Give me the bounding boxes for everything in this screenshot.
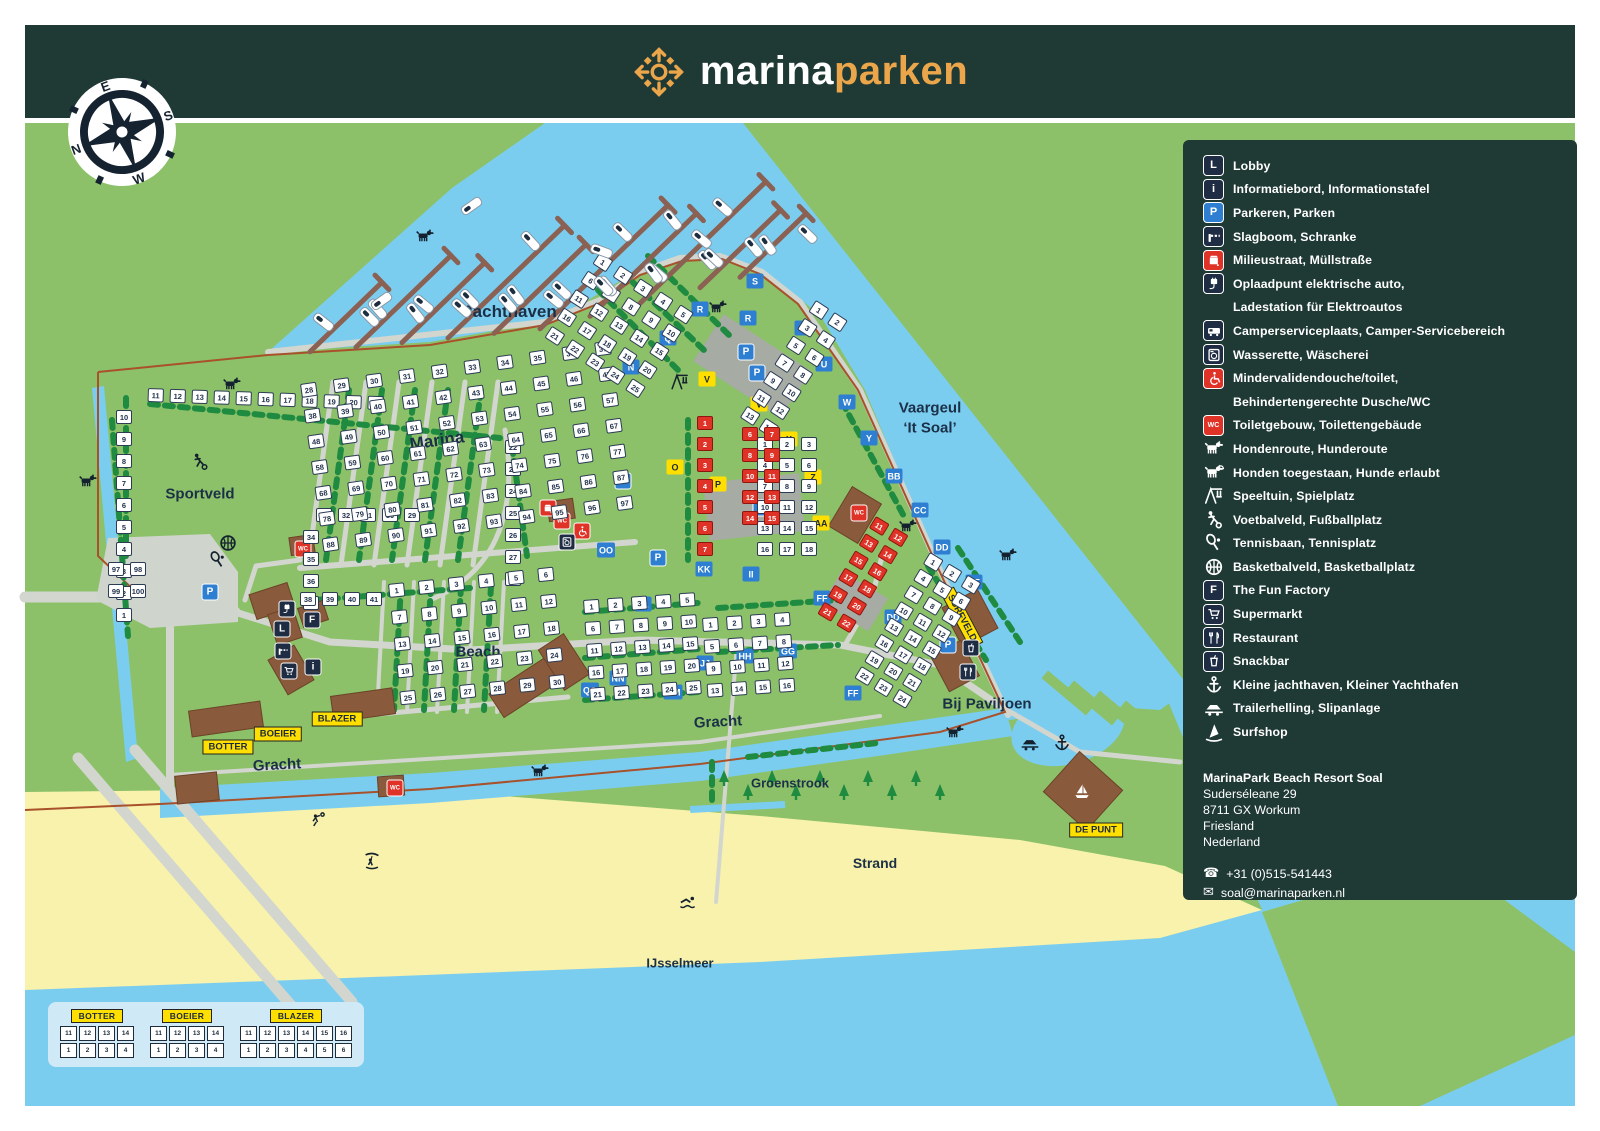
lot-number: 3 [750,614,767,629]
legend-item-label: Mindervalidendouche/toilet, [1233,371,1398,385]
legend-item: Behindertengerechte Dusche/WC [1203,390,1567,414]
lot-number: 43 [467,385,485,401]
map-label: Vaargeul [899,400,962,417]
legend-item: Honden toegestaan, Hunde erlaubt [1203,461,1567,485]
restaurant-icon [1203,627,1224,648]
map-label: Strand [853,855,897,871]
lot-number: 21 [544,326,565,346]
lot-number: 2 [607,597,624,612]
compass-rose: E S W N [62,72,182,192]
lot-number: 15 [754,679,771,694]
lot-number: 12 [801,500,817,514]
lot-number: 11 [148,388,164,403]
lot-number: 8 [775,634,792,649]
lot-number: 35 [303,552,319,566]
playground-icon [671,373,690,392]
map-label: Groenstrook [751,776,829,791]
key-lot-number: 3 [278,1043,295,1058]
legend-item-label: Behindertengerechte Dusche/WC [1233,395,1431,409]
lot-number: 2 [726,615,743,630]
lot-number: 19 [864,650,885,670]
lot-number: 1 [923,552,944,572]
lot-number: 97 [616,495,634,511]
key-lot-number: 12 [169,1026,186,1041]
lot-number: 71 [413,471,431,487]
lot-number: 1 [388,582,405,598]
lot-number: 8 [116,454,132,468]
p-icon: P [202,584,219,601]
lot-number: 4 [697,479,713,493]
legend-item: Mindervalidendouche/toilet, [1203,366,1567,390]
lot-letter-badge: V [699,372,716,387]
key-group-name: BOTTER [71,1009,124,1023]
legend-item: Slagboom, Schranke [1203,225,1567,249]
lot-number: 59 [344,454,362,470]
legend-item-label: Hondenroute, Hunderoute [1233,442,1388,456]
legend-item-label: Toiletgebouw, Toilettengebäude [1233,418,1422,432]
boat [459,195,484,216]
lot-number: 9 [705,661,722,676]
lot-number: 14 [629,328,650,348]
i-icon: i [305,659,322,676]
key-lot-number: 14 [207,1026,224,1041]
key-lot-number: 14 [297,1026,314,1041]
legend-item: Oplaadpunt elektrische auto, [1203,272,1567,296]
lot-number: 6 [742,427,758,441]
lot-number: 14 [779,521,795,535]
lot-number: 50 [373,424,391,440]
key-lot-number: 1 [60,1043,77,1058]
lot-number: 17 [779,542,795,556]
basketball-icon [219,534,238,553]
lot-number: 8 [421,606,438,622]
lot-number: 4 [653,291,674,311]
legend-item-label: Surfshop [1233,725,1288,739]
lot-number: 74 [511,457,529,473]
lot-number: 9 [641,310,662,330]
lot-number: 10 [781,382,802,402]
boat [519,230,542,254]
sailboat-icon [1073,783,1092,802]
key-lot-number: 13 [278,1026,295,1041]
key-lot-number: 2 [259,1043,276,1058]
lot-number: 1 [702,617,719,632]
lot-number: 96 [583,500,601,516]
key-group-name: BLAZER [270,1009,322,1023]
lot-number: 84 [514,483,532,499]
lot-number: 63 [474,436,492,452]
lot-number: 3 [697,458,713,472]
lot-key-panel: BOTTER111213141234BOEIER111213141234BLAZ… [48,1002,364,1067]
lot-number: 6 [727,637,744,652]
lot-number: 15 [801,521,817,535]
legend-items: LLobbyiInformatiebord, Informationstafel… [1203,154,1567,744]
lot-number: 54 [503,406,521,422]
lot-number: 10 [742,469,758,483]
dog-icon [1203,438,1225,460]
lot-letter-badge: R [692,302,709,317]
lot-number: 83 [481,488,499,504]
lot-number: 23 [873,677,894,697]
lot-number: 34 [496,354,514,370]
dog-icon [709,299,728,318]
lot-number: 2 [418,579,435,595]
lot-number: 8 [793,365,814,385]
lot-number: 11 [779,500,795,514]
cart-icon [1203,604,1224,625]
map-label: Bij Paviljoen [942,696,1031,713]
trailer-icon [1203,697,1225,719]
key-lot-number: 2 [79,1043,96,1058]
lot-number: 22 [836,613,857,633]
lot-number: 6 [116,498,132,512]
lot-number: 25 [399,690,416,706]
lot-number: 29 [519,677,536,693]
key-lot-number: 16 [335,1026,352,1041]
legend-item: Wasserette, Wäscherei [1203,343,1567,367]
dog-icon [999,547,1018,566]
lot-number: 9 [764,448,780,462]
lot-number: 14 [213,390,229,405]
lot-number: 20 [637,360,658,380]
lot-number: 85 [547,478,565,494]
resort-phone: +31 (0)515-541443 [1226,866,1332,882]
lot-number: 5 [679,592,696,607]
legend-item-label: Oplaadpunt elektrische auto, [1233,277,1405,291]
lot-number: 13 [394,636,411,652]
kitesurfer-icon [363,853,382,872]
lot-letter-badge: OO [597,543,615,558]
map-label: Sportveld [165,486,234,503]
lot-number: 10 [680,614,697,629]
lot-letter-badge: II [743,567,760,582]
lot-number: 39 [336,403,354,419]
lot-number: 11 [912,612,933,632]
lot-number: 72 [445,466,463,482]
wc-icon: WC [851,505,868,522]
email-icon: ✉ [1203,884,1214,901]
lot-number: 9 [450,603,467,619]
boat [710,195,734,218]
lot-number: 4 [655,594,672,609]
lot-number: 14 [731,681,748,696]
lot-number: 3 [448,576,465,592]
legend-item-label: Snackbar [1233,654,1289,668]
map-label: Gracht [252,755,301,775]
lot-number: 16 [257,392,273,407]
lot-number: 15 [682,636,699,651]
footballer-icon [191,453,210,472]
legend-item: Surfshop [1203,720,1567,744]
key-lot-number: 15 [316,1026,333,1041]
snackbar-icon [963,640,980,657]
lot-number: 6 [697,521,713,535]
lot-number: 21 [902,672,923,692]
lot-number: 21 [589,687,606,702]
lot-number: 48 [307,433,325,449]
lot-number: 15 [453,630,470,646]
legend-item: Camperserviceplaats, Camper-Serviceberei… [1203,319,1567,343]
lot-number: 16 [588,665,605,680]
lot-number: 23 [516,650,533,666]
lot-number: 4 [774,612,791,627]
lot-number: 24 [661,682,678,697]
lot-number: 52 [438,415,456,431]
lot-number: 27 [459,683,476,699]
lot-number: 81 [416,497,434,513]
lot-number: 75 [543,453,561,469]
lot-letter-badge: S [747,274,764,289]
legend-item-label: Voetbalveld, Fußballplatz [1233,513,1382,527]
legend-item-label: Wasserette, Wäscherei [1233,348,1369,362]
lot-number: 46 [565,371,583,387]
lot-number: 28 [300,382,318,398]
lot-number: 16 [867,562,888,582]
lot-number: 7 [116,476,132,490]
lot-number: 79 [351,506,369,522]
lot-number: 42 [434,389,452,405]
l-icon: L [1203,155,1224,176]
ev-icon [279,601,296,618]
lot-number: 22 [613,685,630,700]
lot-number: 77 [609,443,627,459]
lot-number: 67 [605,418,623,434]
lot-number: 8 [922,596,943,616]
cart-icon [281,663,298,680]
lot-number: 25 [625,378,646,398]
wc-icon: WC [1203,415,1224,436]
lot-number: 33 [463,359,481,375]
lot-number: 2 [827,312,848,332]
lot-number: 41 [402,394,420,410]
resort-email: soal@marinaparken.nl [1221,885,1345,901]
dog-icon [416,228,435,247]
lot-number: 24 [892,689,913,709]
area-tag: BLAZER [312,712,363,727]
lot-number: 14 [742,511,758,525]
lot-number: 57 [601,392,619,408]
lot-number: 88 [322,536,340,552]
legend-item-label: Basketbalveld, Basketballplatz [1233,560,1415,574]
wheelchair-icon [574,523,591,540]
lot-number: 65 [540,427,558,443]
lot-number: 87 [612,469,630,485]
lot-number: 17 [838,567,859,587]
lot-letter-badge: R [740,311,757,326]
lot-number: 3 [633,278,654,298]
lot-number: 7 [764,427,780,441]
legend-item: Ladestation für Elektroautos [1203,296,1567,320]
lot-number: 4 [913,568,934,588]
lot-number: 86 [580,474,598,490]
lot-number: 6 [801,458,817,472]
lot-number: 35 [529,350,547,366]
lot-number: 18 [635,661,652,676]
lot-number: 8 [632,617,649,632]
lot-number: 10 [729,659,746,674]
lot-number: 16 [757,542,773,556]
barrier-icon [1203,226,1224,247]
lot-number: 1 [116,608,132,622]
lot-number: 64 [507,431,525,447]
legend-item: Snackbar [1203,649,1567,673]
lot-number: 10 [480,600,497,616]
lot-number: 70 [380,476,398,492]
p-icon: P [749,365,766,382]
lot-number: 9 [656,616,673,631]
brand-logo: marinaparken [632,45,968,99]
lot-number: 98 [130,562,146,576]
lot-number: 45 [532,375,550,391]
lot-number: 26 [505,528,521,542]
lot-number: 31 [398,368,416,384]
legend-item: Basketbalveld, Basketballplatz [1203,555,1567,579]
legend-item: Trailerhelling, Slipanlage [1203,697,1567,721]
lot-number: 56 [569,397,587,413]
lot-number: 2 [779,437,795,451]
key-lot-number: 5 [316,1043,333,1058]
lot-number: 26 [429,687,446,703]
lot-number: 20 [883,661,904,681]
boat [689,228,713,250]
legend-item-label: Ladestation für Elektroautos [1233,300,1403,314]
legend-item: FThe Fun Factory [1203,579,1567,603]
key-lot-number: 11 [240,1026,257,1041]
legend-item: PParkeren, Parken [1203,201,1567,225]
lot-number: 8 [779,479,795,493]
brand-name: marinaparken [700,49,968,94]
lot-number: 13 [634,639,651,654]
lot-number: 19 [396,663,413,679]
key-lot-number: 13 [188,1026,205,1041]
lot-number: 19 [659,660,676,675]
lot-number: 89 [354,532,372,548]
lot-number: 16 [483,627,500,643]
lot-number: 73 [478,462,496,478]
lot-number: 38 [304,408,322,424]
lot-number: 40 [344,592,360,606]
lot-number: 5 [779,458,795,472]
lot-number: 82 [449,492,467,508]
legend-item: WCToiletgebouw, Toilettengebäude [1203,414,1567,438]
legend-item-label: Lobby [1233,159,1270,173]
legend-item-label: Milieustraat, Müllstraße [1233,253,1372,267]
lot-number: 7 [608,619,625,634]
lot-number: 11 [869,516,890,536]
legend-item-label: Slagboom, Schranke [1233,230,1356,244]
legend-item: Restaurant [1203,626,1567,650]
lot-number: 93 [485,513,503,529]
lot-number: 8 [742,448,758,462]
lot-number: 14 [658,638,675,653]
lot-letter-badge: W [839,395,856,410]
p-icon: P [738,344,755,361]
lot-number: 12 [589,302,610,322]
washer-icon [559,534,576,551]
lot-number: 10 [116,410,132,424]
lot-number: 55 [536,401,554,417]
lot-number: 17 [612,663,629,678]
lot-number: 17 [513,623,530,639]
boat [796,223,819,246]
lot-number: 7 [774,353,795,373]
lot-number: 61 [409,445,427,461]
legend-item-label: Honden toegestaan, Hunde erlaubt [1233,466,1440,480]
brand-name-primary: marina [700,49,834,93]
dog-icon [531,763,550,782]
dog-icon [946,724,965,743]
lot-number: 11 [586,643,603,658]
washer-icon [1203,344,1224,365]
key-lot-number: 3 [188,1043,205,1058]
boat [661,208,683,232]
lot-number: 53 [471,410,489,426]
tennis-icon [209,551,228,570]
lot-letter-badge: Y [861,431,878,446]
lot-number: 34 [303,530,319,544]
resort-country: Nederland [1203,834,1567,850]
f-icon: F [1203,580,1224,601]
lot-number: 27 [505,550,521,564]
lot-number: 6 [585,621,602,636]
lot-number: 44 [500,380,518,396]
lot-number: 58 [311,459,329,475]
lot-number: 12 [742,490,758,504]
lot-number: 13 [764,490,780,504]
legend-item-label: Restaurant [1233,631,1298,645]
lot-number: 18 [857,579,878,599]
lot-letter-badge: CC [912,503,929,518]
lot-number: 15 [848,550,869,570]
legend-item-label: Informatiebord, Informationstafel [1233,182,1430,196]
resort-address-block: MarinaPark Beach Resort Soal Sudersélean… [1203,770,1567,901]
lot-number: 9 [801,479,817,493]
lot-letter-badge: KK [696,562,713,577]
lot-number: 16 [556,307,577,327]
legend-panel: LLobbyiInformatiebord, Informationstafel… [1183,140,1577,900]
lot-number: 5 [116,520,132,534]
lot-number: 2 [613,265,634,285]
ev-icon [1203,273,1224,294]
lot-number: 80 [383,501,401,517]
lot-number: 13 [191,390,207,405]
lot-letter-badge: FF [845,686,862,701]
trailer-icon [1021,734,1040,753]
lot-number: 94 [518,509,536,525]
restaurant-icon [960,664,977,681]
lot-number: 12 [770,400,791,420]
lot-number: 14 [877,544,898,564]
map-label: Gracht [693,712,742,732]
lot-number: 7 [903,585,924,605]
map-label: ‘It Soal’ [903,420,956,437]
legend-item: iInformatiebord, Informationstafel [1203,178,1567,202]
surfer-icon [1203,721,1225,743]
lot-number: 17 [577,320,598,340]
lot-letter-badge: BB [886,469,903,484]
lot-number: 15 [235,391,251,406]
header-bar: marinaparken [25,25,1575,118]
tennis-icon [1203,532,1225,554]
lot-number: 14 [423,633,440,649]
legend-item: Supermarkt [1203,602,1567,626]
basketball-icon [1203,556,1225,578]
lot-number: 4 [815,330,836,350]
legend-item: Tennisbaan, Tennisplatz [1203,532,1567,556]
anchor-icon [1053,734,1072,753]
key-lot-number: 4 [207,1043,224,1058]
lot-number: 60 [376,450,394,466]
